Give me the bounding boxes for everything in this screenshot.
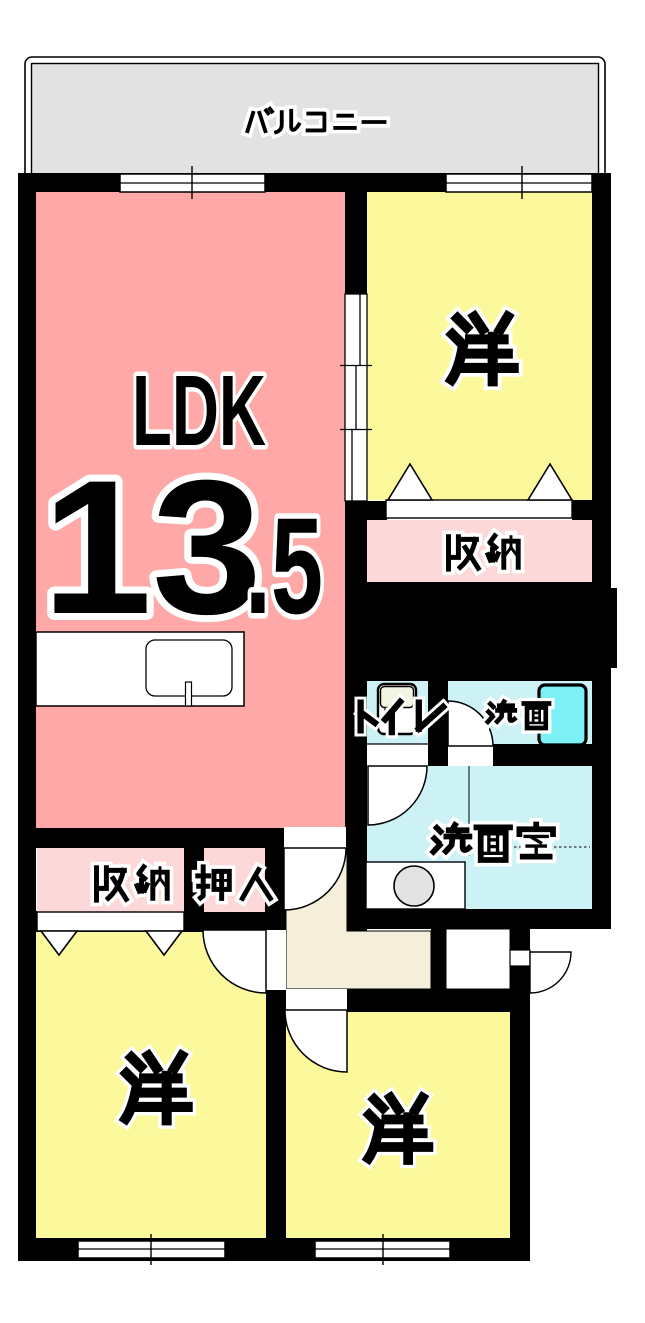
svg-text:.5: .5 (245, 490, 323, 643)
svg-text:13: 13 (42, 441, 262, 654)
